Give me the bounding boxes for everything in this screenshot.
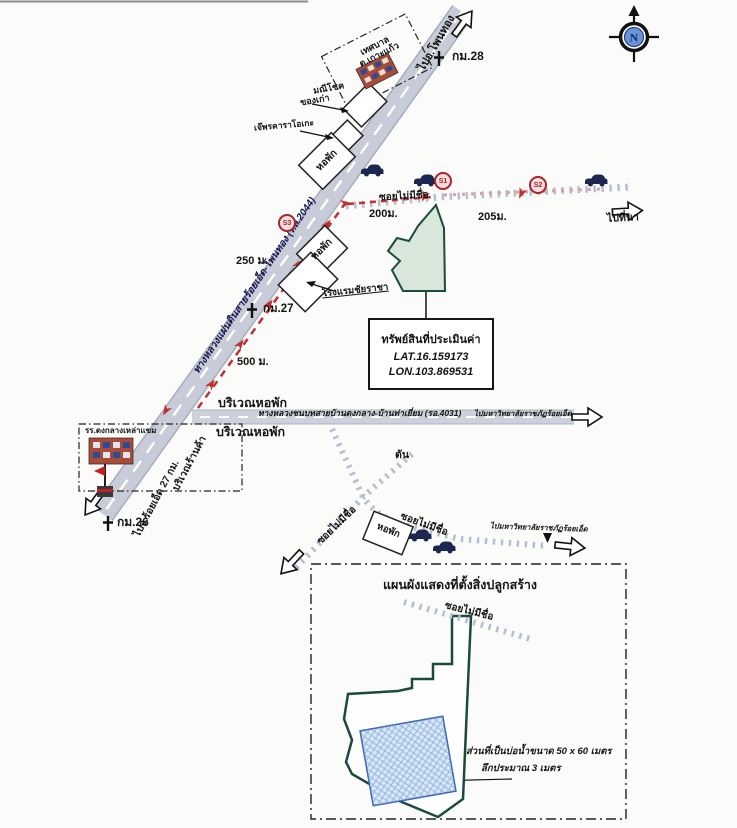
marker-s3-label: S3 <box>283 220 292 227</box>
compass-north-label: N <box>630 31 639 45</box>
property-callout-box: ทรัพย์สินที่ประเมินค่า LAT.16.159173 LON… <box>368 318 494 390</box>
site-plan-title: แผนผังแสดงที่ตั้งสิ่งปลูกสร้าง <box>360 578 560 592</box>
distance-250-label: 250 ม. <box>236 255 268 268</box>
down-arrow-university-icon <box>543 533 552 543</box>
exit-arrow-university-icon <box>572 408 602 426</box>
property-lat: LAT.16.159173 <box>394 351 469 363</box>
distance-205-label: 205ม. <box>478 211 507 224</box>
appraisal-location-map: N ไปอ.โพนทอง กม.28 เทศบาล ต.เกาะแก้ว มณี… <box>0 0 737 828</box>
car-icon <box>585 175 608 187</box>
marker-s2-label: S2 <box>534 182 543 189</box>
marker-s1-label: S1 <box>439 178 448 185</box>
exit-arrow-east-icon <box>554 536 586 557</box>
property-lon: LON.103.869531 <box>389 366 473 378</box>
distance-200-label: 200ม. <box>369 208 398 221</box>
pond-note-line1: ส่วนที่เป็นบ่อน้ำขนาด 50 x 60 เมตร <box>466 747 611 758</box>
marker-s1: S1 <box>434 172 452 190</box>
distance-500-label: 500 ม. <box>237 356 269 369</box>
marker-s2: S2 <box>529 176 547 194</box>
dead-end-label: ตัน <box>395 449 409 461</box>
km27-label: กม.27 <box>263 303 294 316</box>
school-name-label: รร.ดงกลางเหล่าแขม <box>85 426 156 435</box>
direction-fields-label: ไปที่นา <box>607 211 640 225</box>
km28-label: กม.28 <box>452 50 484 64</box>
property-title: ทรัพย์สินที่ประเมินค่า <box>381 330 480 348</box>
pond-rectangle <box>360 716 456 805</box>
pond-note-line2: ลึกประมาณ 3 เมตร <box>481 764 561 775</box>
direction-university-label: ไปมหาวิทยาลัยราชภัฏร้อยเอ็ด <box>474 410 572 419</box>
rural-road-name-label: ทางหลวงชนบทสายบ้านดงกลาง-บ้านท่าเยี่ยม (… <box>258 409 461 419</box>
km26-label: กม.26 <box>117 516 149 530</box>
dorm-area-below-label: บริเวณหอพัก <box>216 425 285 439</box>
marker-s3: S3 <box>278 214 296 232</box>
car-icon <box>433 542 456 554</box>
compass-icon: N <box>609 5 659 62</box>
